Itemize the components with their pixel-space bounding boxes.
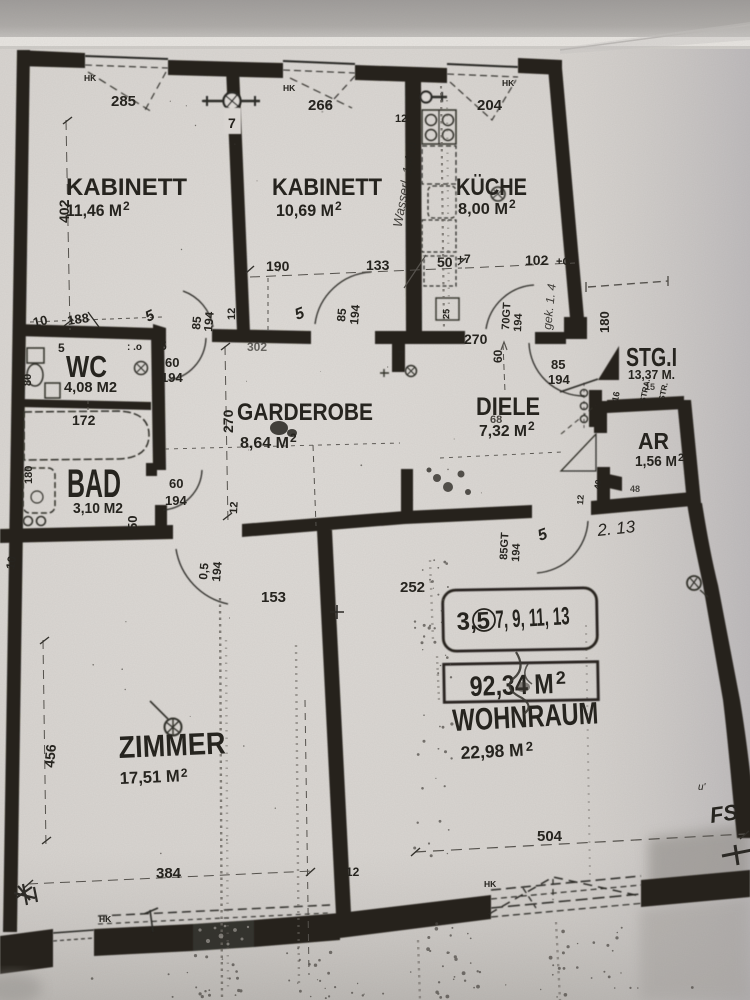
svg-text:7,32 M: 7,32 M [479,423,527,440]
svg-text:12: 12 [575,494,586,505]
svg-text:194: 194 [548,372,570,387]
svg-text:HK: HK [484,879,497,889]
svg-text:384: 384 [156,865,182,882]
svg-text:8,00 M: 8,00 M [458,201,508,218]
svg-text:2: 2 [335,199,342,213]
svg-text:252: 252 [400,579,425,596]
svg-text:194: 194 [209,561,225,582]
svg-text:5: 5 [536,525,551,544]
svg-text:5: 5 [160,339,167,353]
svg-text:190: 190 [266,258,290,274]
svg-text:+7: +7 [457,252,471,266]
svg-text:AR: AR [638,428,669,454]
svg-text:KABINETT: KABINETT [66,174,187,201]
svg-text:17,51 M: 17,51 M [119,766,180,788]
svg-text:10: 10 [3,555,19,571]
svg-text:302: 302 [247,340,267,354]
svg-text:7: 7 [228,115,236,131]
svg-text:2: 2 [181,766,189,780]
svg-text:16: 16 [610,391,622,403]
svg-text:12: 12 [395,113,407,125]
svg-text:7, 9, 11, 13: 7, 9, 11, 13 [495,602,570,634]
svg-text:1,56 M: 1,56 M [635,453,677,470]
svg-text:KÜCHE: KÜCHE [456,174,527,201]
svg-text:25: 25 [441,309,451,319]
svg-text:50: 50 [125,516,140,530]
svg-text:12: 12 [228,501,241,514]
svg-text:102: 102 [525,252,549,268]
svg-text:7: 7 [397,348,404,363]
svg-text:60: 60 [169,476,183,491]
svg-text:270: 270 [464,331,488,347]
svg-text:12: 12 [346,865,360,879]
svg-text:68: 68 [490,414,502,426]
svg-text:204: 204 [477,97,503,114]
svg-text:180: 180 [597,311,612,333]
svg-text:2: 2 [290,431,297,445]
svg-text:2: 2 [555,668,566,688]
svg-text:85: 85 [551,357,565,372]
svg-text:5: 5 [58,341,65,355]
svg-text:+O: +O [556,256,571,268]
svg-text:2: 2 [509,197,516,211]
svg-text:8,64 M: 8,64 M [240,435,289,452]
svg-text:194: 194 [201,311,217,332]
svg-text:285: 285 [111,93,136,110]
svg-text:266: 266 [308,97,333,114]
svg-text:2. 13: 2. 13 [595,517,636,540]
svg-text:10: 10 [32,312,49,330]
svg-text:194: 194 [512,312,525,332]
svg-text:2: 2 [678,452,684,464]
svg-text:4,08 M2: 4,08 M2 [64,379,117,396]
svg-text:40: 40 [592,479,604,491]
svg-text:133: 133 [366,257,390,273]
svg-text:194: 194 [161,370,183,385]
svg-text:194: 194 [347,304,363,325]
svg-text:270: 270 [220,409,236,433]
svg-text:180: 180 [23,466,35,484]
svg-text:GARDEROBE: GARDEROBE [237,399,373,426]
svg-text:ZIMMER: ZIMMER [118,725,226,765]
svg-text:60: 60 [491,349,505,363]
svg-text:DIELE: DIELE [476,393,540,421]
svg-text:5: 5 [143,306,158,325]
svg-text:188: 188 [66,310,90,328]
svg-text:3,10 M2: 3,10 M2 [73,500,123,517]
svg-text:u': u' [698,782,707,793]
svg-text:13,37 M.: 13,37 M. [628,367,675,382]
svg-text:HK: HK [283,83,296,93]
svg-text:10,69 M: 10,69 M [276,202,334,220]
svg-text:3,: 3, [456,607,477,636]
svg-text:5: 5 [293,304,308,323]
svg-text:172: 172 [72,412,96,428]
svg-text:2: 2 [528,419,535,433]
svg-text:15: 15 [645,382,655,392]
svg-text:194: 194 [165,493,187,508]
svg-text:504: 504 [537,828,563,845]
svg-text:153: 153 [261,589,286,606]
svg-text:11,46 M: 11,46 M [66,202,122,220]
svg-text:2: 2 [525,739,533,754]
svg-text:194: 194 [510,542,523,562]
svg-text:48: 48 [630,484,640,494]
svg-text:gek. 1. 4: gek. 1. 4 [540,283,559,331]
svg-text:60: 60 [165,355,179,370]
svg-text:92,34 M: 92,34 M [469,668,554,702]
svg-text:KABINETT: KABINETT [272,174,382,201]
svg-text:50: 50 [437,254,453,270]
svg-text:2: 2 [123,199,130,213]
svg-text:HK: HK [502,78,515,88]
svg-text:456: 456 [41,743,59,768]
svg-text:HK: HK [84,73,97,83]
svg-text:402: 402 [56,199,72,223]
svg-text:22,98 M: 22,98 M [460,740,524,763]
svg-text:HK: HK [99,914,112,924]
svg-text:12: 12 [226,308,238,320]
svg-text:FS: FS [708,799,740,828]
svg-text:: .o: : .o [127,342,142,353]
svg-text:80: 80 [22,374,34,386]
